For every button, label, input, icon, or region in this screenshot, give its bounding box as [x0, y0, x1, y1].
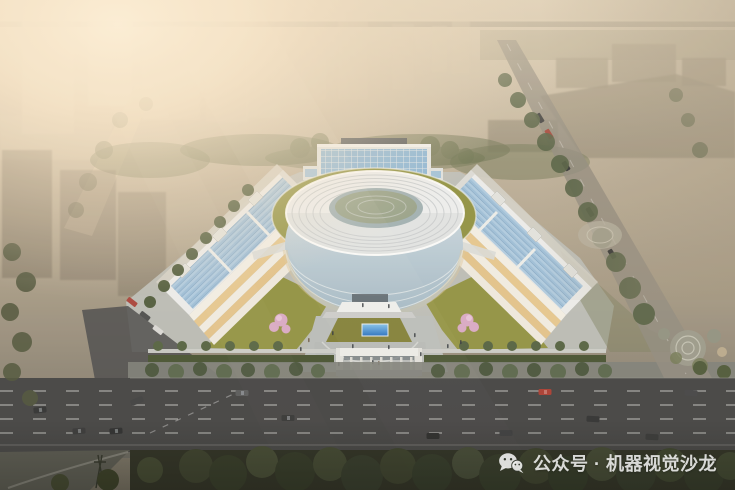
architectural-rendering-screenshot: 公众号 · 机器视觉沙龙	[0, 0, 735, 490]
wechat-icon	[498, 452, 525, 475]
atmosphere-overlays	[0, 0, 735, 490]
aerial-scene	[0, 0, 735, 490]
watermark: 公众号 · 机器视觉沙龙	[498, 450, 717, 476]
watermark-text: 公众号 · 机器视觉沙龙	[533, 450, 717, 476]
